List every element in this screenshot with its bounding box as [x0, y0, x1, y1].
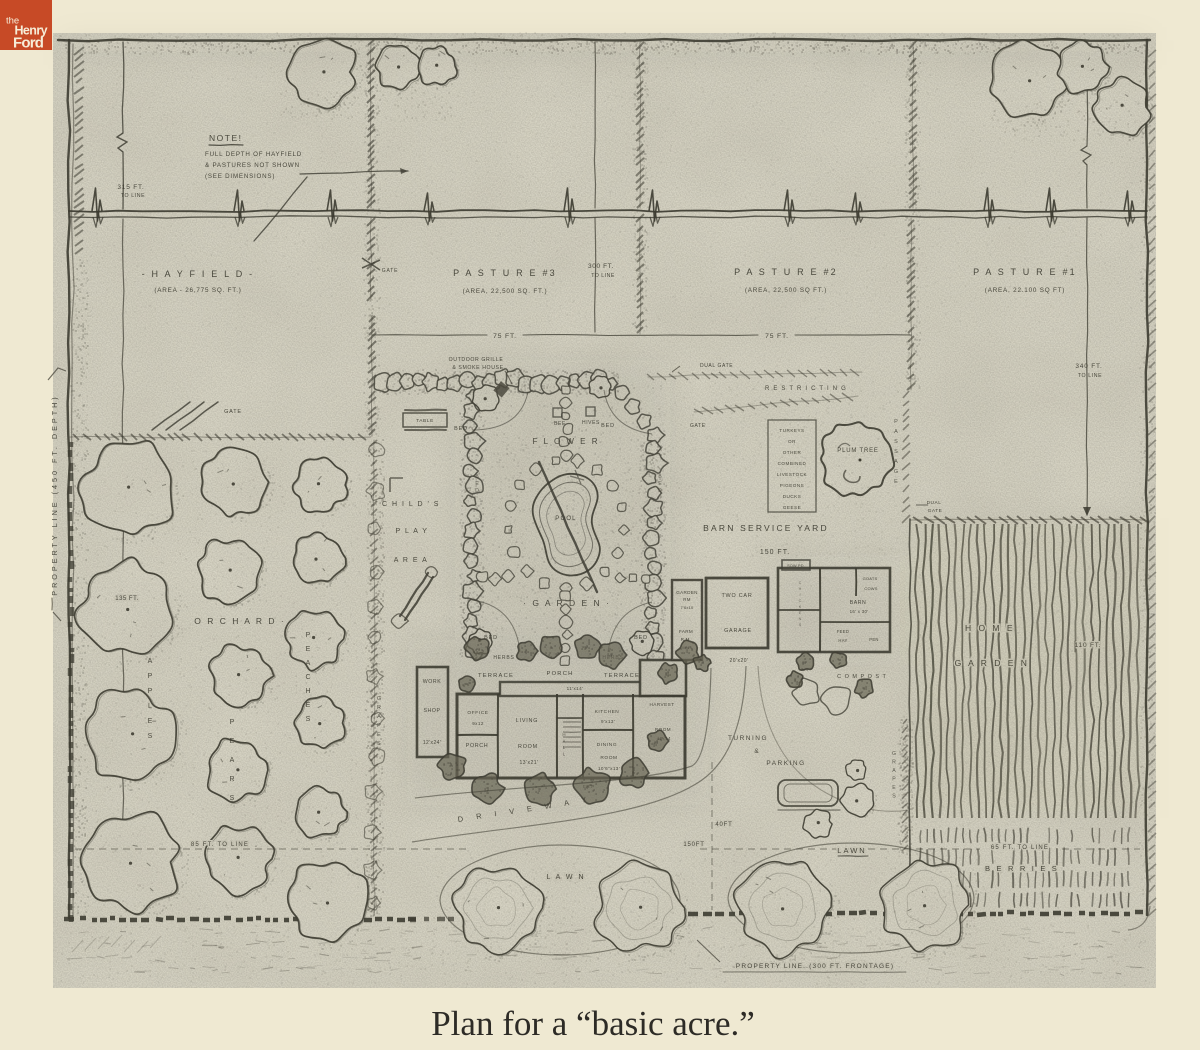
svg-text:Plan for a “basic acre.”: Plan for a “basic acre.” [431, 1004, 755, 1043]
svg-text:Ford: Ford [13, 35, 44, 52]
